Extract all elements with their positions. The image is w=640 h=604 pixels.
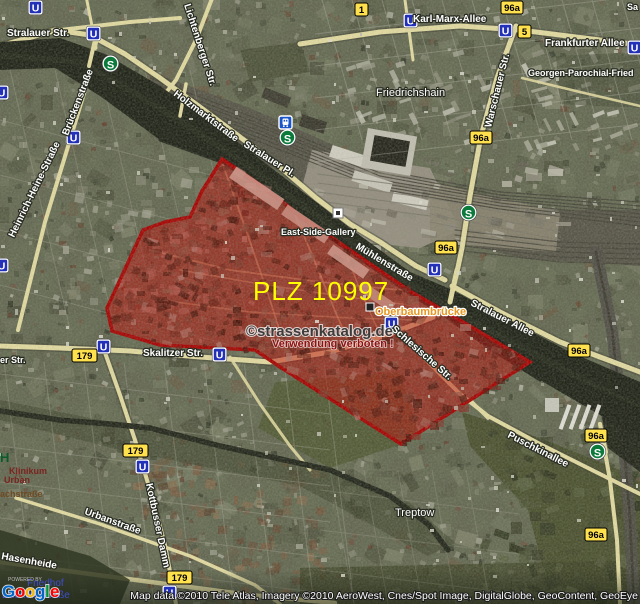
svg-text:U: U — [139, 461, 147, 473]
svg-text:S: S — [465, 208, 472, 220]
svg-text:G: G — [2, 582, 15, 601]
svg-text:U: U — [0, 87, 5, 99]
svg-text:Sa: Sa — [627, 2, 639, 12]
svg-text:1: 1 — [359, 5, 365, 16]
svg-text:179: 179 — [172, 573, 188, 584]
svg-text:o: o — [15, 582, 25, 601]
svg-text:achstraße: achstraße — [0, 489, 43, 499]
svg-text:96a: 96a — [588, 431, 605, 442]
svg-text:U: U — [431, 264, 439, 276]
svg-text:179: 179 — [128, 446, 144, 457]
svg-text:H: H — [0, 450, 9, 465]
svg-text:e: e — [50, 582, 59, 601]
svg-text:o: o — [25, 582, 35, 601]
svg-text:S: S — [107, 59, 114, 71]
svg-text:Verwendung verboten !: Verwendung verboten ! — [272, 338, 394, 350]
svg-text:Urban: Urban — [4, 475, 30, 485]
svg-text:S: S — [284, 133, 291, 145]
svg-text:er Str.: er Str. — [0, 355, 26, 365]
svg-text:East-Side-Gallery: East-Side-Gallery — [281, 227, 356, 237]
svg-text:Oberbaumbrücke: Oberbaumbrücke — [375, 306, 466, 318]
svg-text:179: 179 — [77, 351, 93, 362]
svg-text:Frankfurter Allee: Frankfurter Allee — [545, 38, 625, 49]
svg-text:Map data ©2010 Tele Atlas, Ima: Map data ©2010 Tele Atlas, Imagery ©2010… — [130, 590, 638, 602]
svg-text:96a: 96a — [438, 243, 455, 254]
svg-text:PLZ 10997: PLZ 10997 — [253, 276, 389, 306]
svg-text:POWERED BY: POWERED BY — [8, 577, 43, 583]
svg-text:96a: 96a — [588, 530, 605, 541]
svg-text:5: 5 — [522, 27, 528, 38]
svg-text:U: U — [631, 42, 639, 54]
svg-text:Friedrichshain: Friedrichshain — [376, 87, 445, 99]
svg-text:S: S — [594, 447, 601, 459]
svg-text:96a: 96a — [504, 3, 521, 14]
svg-text:96a: 96a — [473, 133, 490, 144]
svg-text:Georgen-Parochial-Fried: Georgen-Parochial-Fried — [528, 68, 634, 78]
svg-text:Skalitzer Str.: Skalitzer Str. — [143, 348, 203, 359]
svg-text:U: U — [32, 2, 40, 14]
svg-text:U: U — [502, 25, 510, 37]
svg-text:Treptow: Treptow — [395, 507, 434, 519]
svg-text:U: U — [90, 28, 98, 40]
svg-text:96a: 96a — [571, 346, 588, 357]
svg-text:U: U — [216, 349, 224, 361]
svg-text:Stralauer Str.: Stralauer Str. — [7, 28, 69, 39]
svg-text:g: g — [35, 582, 45, 601]
svg-text:U: U — [0, 260, 5, 272]
svg-text:U: U — [100, 341, 108, 353]
svg-text:Karl-Marx-Allee: Karl-Marx-Allee — [413, 14, 487, 25]
